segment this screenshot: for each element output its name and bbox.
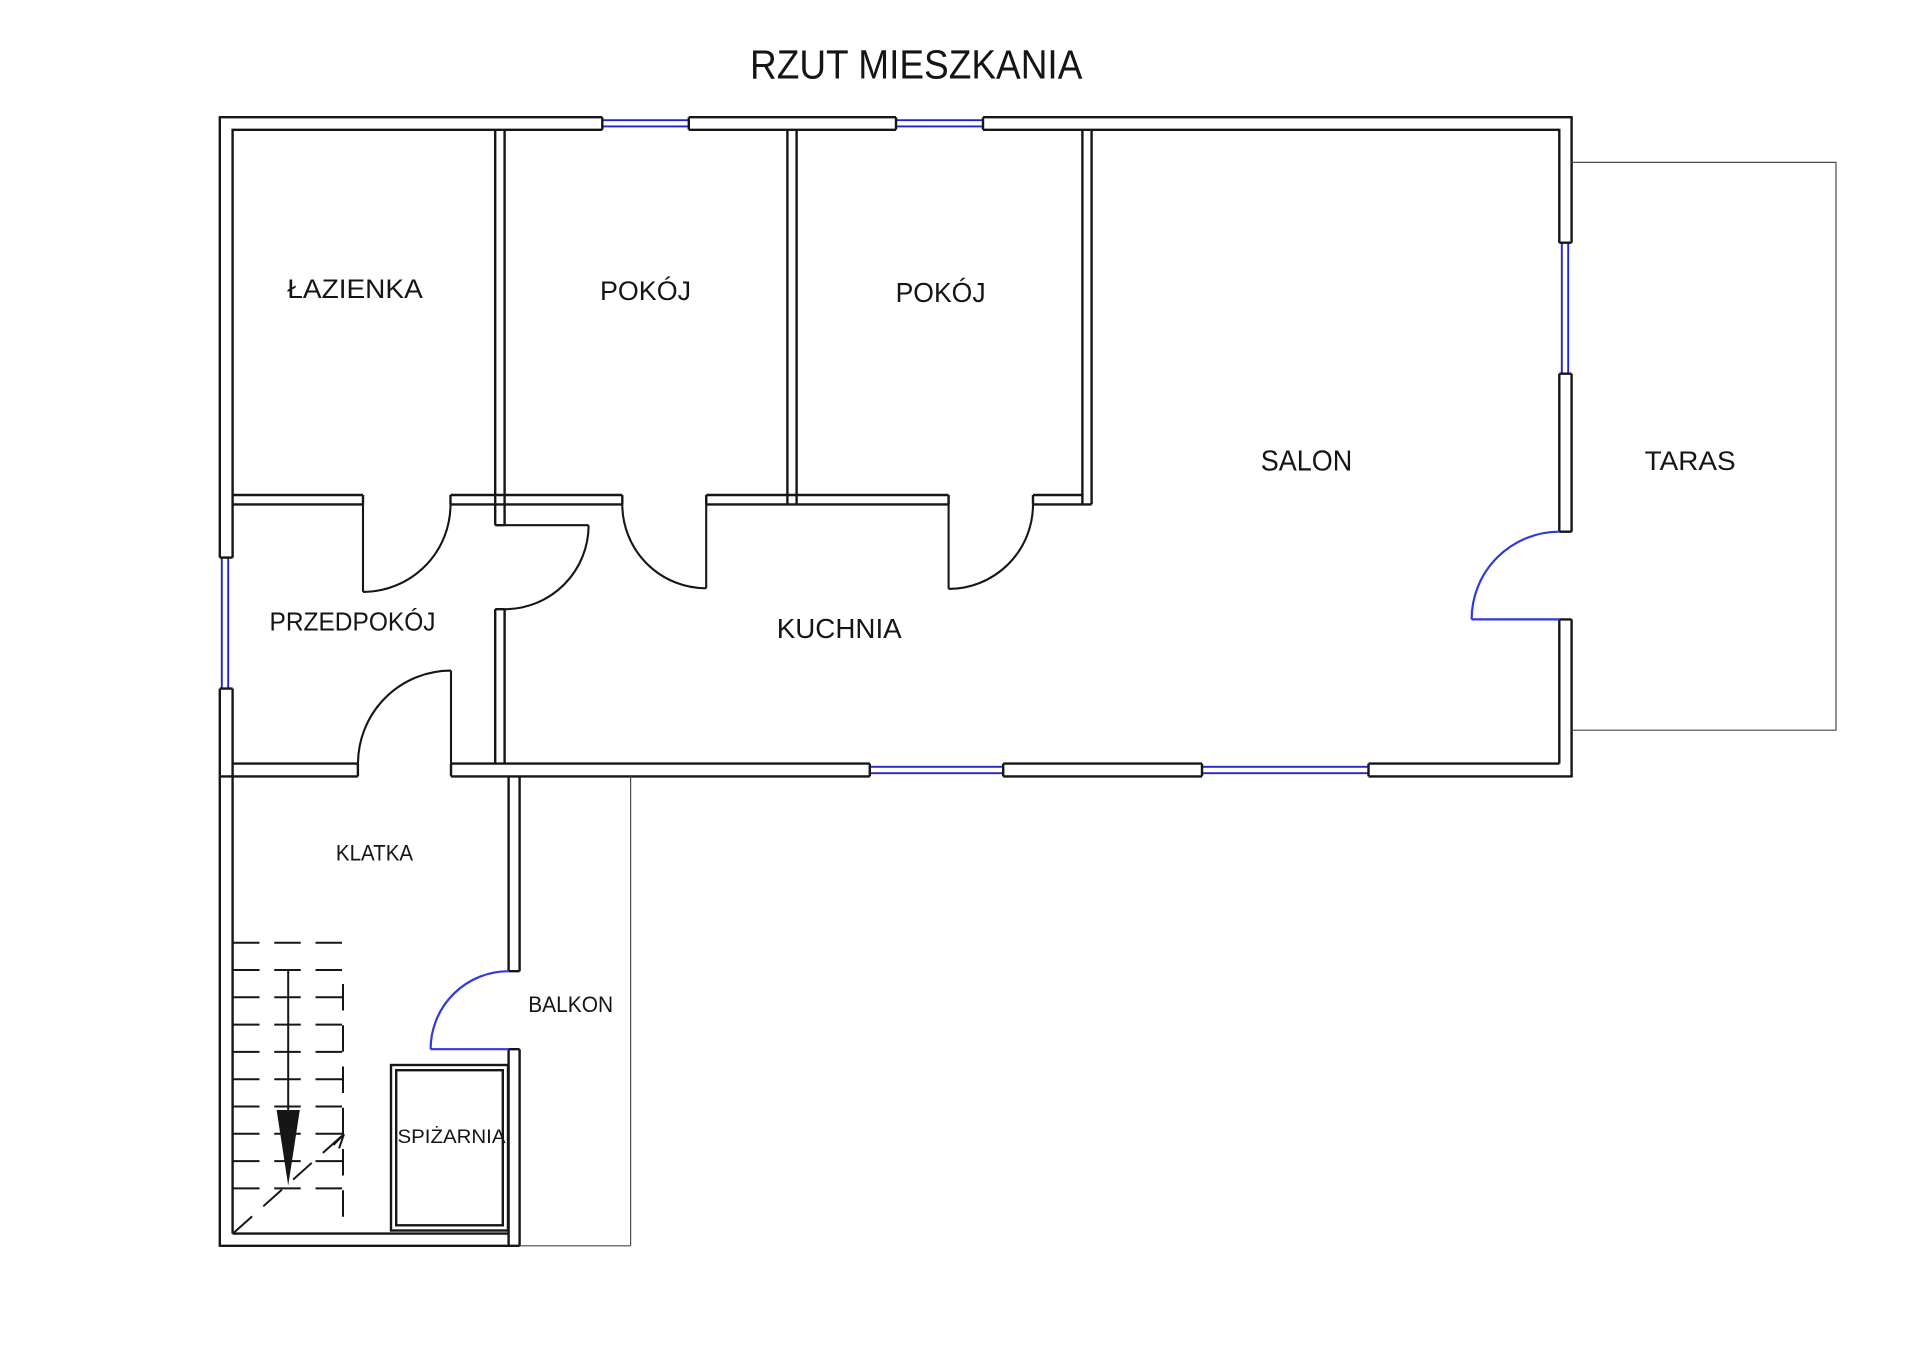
svg-text:SALON: SALON [1261,446,1353,478]
svg-text:KUCHNIA: KUCHNIA [777,613,902,644]
svg-text:SPIŻARNIA: SPIŻARNIA [398,1127,506,1148]
svg-text:KLATKA: KLATKA [336,841,413,866]
svg-text:POKÓJ: POKÓJ [600,275,691,306]
svg-text:PRZEDPOKÓJ: PRZEDPOKÓJ [270,607,436,637]
svg-text:RZUT MIESZKANIA: RZUT MIESZKANIA [750,42,1083,88]
svg-text:BALKON: BALKON [528,992,613,1017]
svg-text:ŁAZIENKA: ŁAZIENKA [287,274,423,304]
svg-text:POKÓJ: POKÓJ [896,277,986,308]
svg-text:TARAS: TARAS [1645,446,1736,476]
